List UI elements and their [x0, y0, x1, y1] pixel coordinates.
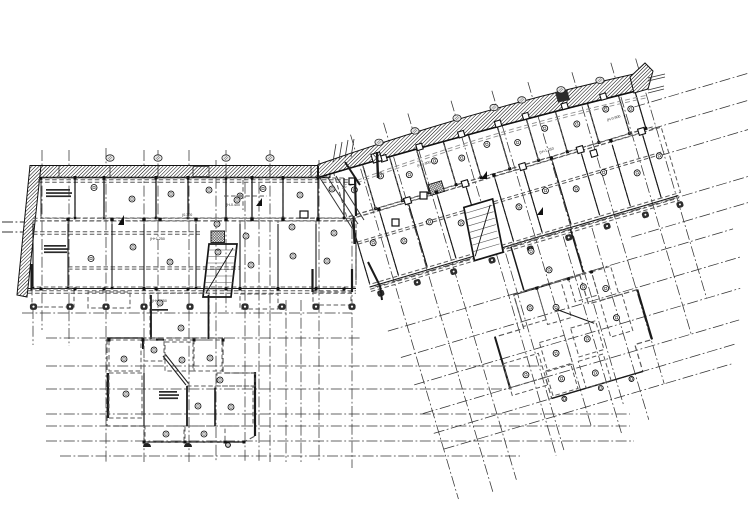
svg-text:(H-0.400: (H-0.400 [226, 203, 240, 207]
svg-text:(H+1.250: (H+1.250 [150, 237, 165, 241]
svg-text:(0.300: (0.300 [182, 213, 192, 217]
